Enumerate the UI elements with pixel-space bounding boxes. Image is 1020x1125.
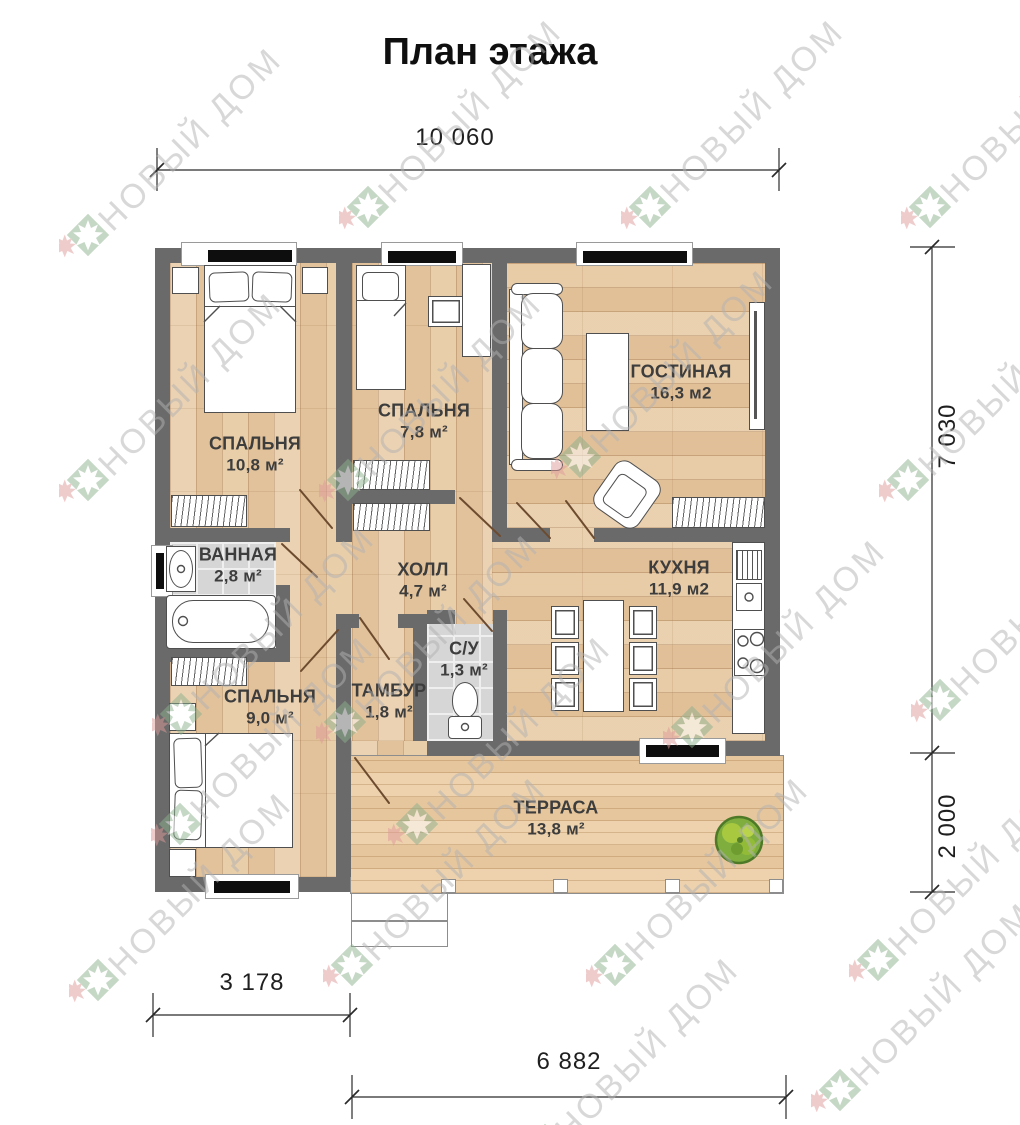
- watermark: НОВЫЙ ДОМ: [339, 178, 397, 236]
- room-label-hall: ХОЛЛ 4,7 м²: [397, 560, 448, 603]
- new-house-logo-icon: [59, 206, 117, 264]
- wall-right: [765, 248, 780, 756]
- nightstand: [172, 267, 199, 294]
- watermark: НОВЫЙ ДОМ: [59, 451, 117, 509]
- tv-stand: [749, 302, 765, 430]
- bathtub-basin: [172, 600, 269, 643]
- toilet-tank: [448, 716, 482, 739]
- new-house-logo-icon: [69, 951, 127, 1009]
- wall-bathroom-east: [276, 585, 290, 662]
- wardrobe: [171, 495, 247, 527]
- new-house-logo-icon: [621, 178, 679, 236]
- watermark-text: НОВЫЙ ДОМ: [843, 895, 1020, 1094]
- room-label-living: ГОСТИНАЯ 16,3 м2: [631, 362, 732, 405]
- bed-blanket: [356, 300, 406, 390]
- dimension-right-lower: 2 000: [934, 766, 962, 886]
- sofa-armrest: [511, 459, 563, 471]
- chair: [551, 678, 579, 711]
- watermark-text: НОВЫЙ ДОМ: [943, 505, 1020, 704]
- window-living-glass: [583, 251, 687, 263]
- maple-leaf-icon: [915, 192, 945, 223]
- wall-vestibule-north-b: [398, 614, 413, 628]
- window-bedroom3-glass: [214, 881, 290, 893]
- maple-leaf-red-icon: [849, 960, 866, 983]
- room-label-bedroom1: СПАЛЬНЯ 10,8 м²: [209, 434, 301, 477]
- new-house-logo-icon: [811, 1061, 869, 1119]
- stove: [734, 629, 765, 676]
- maple-leaf-red-icon: [586, 965, 603, 988]
- room-label-kitchen: КУХНЯ 11,9 м2: [648, 558, 710, 601]
- dimension-right-upper: 7 030: [934, 376, 962, 496]
- chair: [551, 606, 579, 639]
- sofa-cushion: [521, 293, 563, 349]
- maple-leaf-red-icon: [59, 480, 76, 503]
- maple-leaf-icon: [600, 950, 630, 981]
- room-label-terrace: ТЕРРАСА 13,8 м²: [514, 798, 599, 841]
- maple-leaf-red-icon: [69, 980, 86, 1003]
- watermark: НОВЫЙ ДОМ: [621, 178, 679, 236]
- maple-leaf-icon: [73, 220, 103, 251]
- maple-leaf-red-icon: [911, 700, 928, 723]
- wardrobe: [353, 460, 430, 490]
- side-table: [428, 296, 464, 327]
- maple-leaf-red-icon: [811, 1090, 828, 1113]
- wall-bedroom3-east: [336, 614, 351, 877]
- watermark: НОВЫЙ ДОМ: [901, 178, 959, 236]
- watermark: НОВЫЙ ДОМ: [911, 671, 969, 729]
- wall-living-west: [492, 263, 507, 542]
- maple-leaf-red-icon: [879, 480, 896, 503]
- new-house-logo-icon: [901, 178, 959, 236]
- wall-bedroom-divider: [336, 263, 352, 542]
- maple-leaf-icon: [863, 945, 893, 976]
- pillow: [173, 738, 203, 789]
- chair: [629, 606, 657, 639]
- tv-screen: [754, 311, 757, 419]
- maple-leaf-red-icon: [901, 207, 918, 230]
- toilet-bowl: [452, 682, 478, 718]
- sink-basin: [169, 550, 193, 588]
- wall-bottom-main: [427, 741, 780, 756]
- terrace-step: [351, 921, 448, 947]
- maple-leaf-icon: [83, 965, 113, 996]
- new-house-logo-icon: [59, 451, 117, 509]
- window-bathroom-glass: [156, 553, 164, 589]
- nightstand: [169, 849, 196, 877]
- watermark: НОВЫЙ ДОМ: [811, 1061, 869, 1119]
- floor-vestibule-threshold: [351, 741, 427, 756]
- dining-table: [583, 600, 624, 712]
- dimension-top: 10 060: [355, 124, 555, 152]
- chair: [629, 678, 657, 711]
- maple-leaf-red-icon: [59, 235, 76, 258]
- wall-bedroom2-south: [352, 490, 455, 504]
- maple-leaf-red-icon: [621, 207, 638, 230]
- watermark-text: НОВЫЙ ДОМ: [911, 285, 1020, 484]
- maple-leaf-icon: [925, 685, 955, 716]
- floor-plan-canvas: План этажа: [0, 0, 1020, 1125]
- watermark: НОВЫЙ ДОМ: [516, 1116, 574, 1125]
- chair: [629, 642, 657, 675]
- bed-blanket: [204, 306, 296, 413]
- terrace-post: [441, 879, 456, 893]
- pillow: [173, 790, 203, 841]
- watermark-text: НОВЫЙ ДОМ: [548, 950, 747, 1125]
- room-label-vestibule: ТАМБУР 1,8 м²: [352, 681, 427, 724]
- maple-leaf-icon: [635, 192, 665, 223]
- new-house-logo-icon: [516, 1116, 574, 1125]
- room-label-bedroom2: СПАЛЬНЯ 7,8 м²: [378, 401, 470, 444]
- sofa-cushion: [521, 403, 563, 459]
- new-house-logo-icon: [879, 451, 937, 509]
- wall-vestibule-north-a: [351, 614, 359, 628]
- new-house-logo-icon: [586, 936, 644, 994]
- wardrobe: [672, 497, 765, 528]
- wall-living-south-right: [594, 528, 765, 542]
- watermark: НОВЫЙ ДОМ: [586, 936, 644, 994]
- pillow: [251, 271, 292, 302]
- window-bedroom1-glass: [208, 250, 292, 262]
- armchair-seat: [600, 471, 648, 520]
- nightstand: [169, 703, 196, 731]
- watermark: НОВЫЙ ДОМ: [879, 451, 937, 509]
- coffee-table: [586, 333, 629, 431]
- wall-wc-east: [493, 610, 507, 756]
- maple-leaf-icon: [73, 465, 103, 496]
- watermark: НОВЫЙ ДОМ: [59, 206, 117, 264]
- window-kitchen-glass: [646, 745, 719, 757]
- wardrobe: [353, 503, 430, 531]
- terrace-post: [769, 879, 783, 893]
- nightstand: [302, 267, 328, 294]
- kitchen-sink: [736, 583, 762, 611]
- new-house-logo-icon: [339, 178, 397, 236]
- wall-living-south-left: [492, 528, 550, 542]
- maple-leaf-icon: [353, 192, 383, 223]
- terrace-post: [665, 879, 680, 893]
- room-label-bedroom3: СПАЛЬНЯ 9,0 м²: [224, 687, 316, 730]
- page-title: План этажа: [0, 31, 980, 74]
- wall-bedroom1-south: [170, 528, 290, 542]
- pillow: [208, 271, 249, 302]
- chair: [551, 642, 579, 675]
- room-label-wc: С/У 1,3 м²: [440, 639, 488, 682]
- terrace-post: [553, 879, 568, 893]
- maple-leaf-icon: [893, 465, 923, 496]
- new-house-logo-icon: [911, 671, 969, 729]
- room-label-bathroom: ВАННАЯ 2,8 м²: [199, 545, 277, 588]
- terrace-step: [351, 893, 448, 921]
- maple-leaf-icon: [825, 1075, 855, 1106]
- cabinet: [462, 264, 491, 357]
- new-house-logo-icon: [849, 931, 907, 989]
- watermark: НОВЫЙ ДОМ: [69, 951, 127, 1009]
- wardrobe: [171, 657, 247, 686]
- dish-rack: [736, 550, 762, 580]
- pillow: [362, 272, 399, 301]
- wall-wc-north: [427, 610, 455, 624]
- window-bedroom2-glass: [388, 251, 456, 263]
- watermark: НОВЫЙ ДОМ: [849, 931, 907, 989]
- sofa-cushion: [521, 348, 563, 404]
- dimension-bottom-left: 3 178: [152, 969, 352, 997]
- maple-leaf-red-icon: [339, 207, 356, 230]
- dimension-bottom: 6 882: [469, 1048, 669, 1076]
- bed-blanket: [205, 733, 293, 848]
